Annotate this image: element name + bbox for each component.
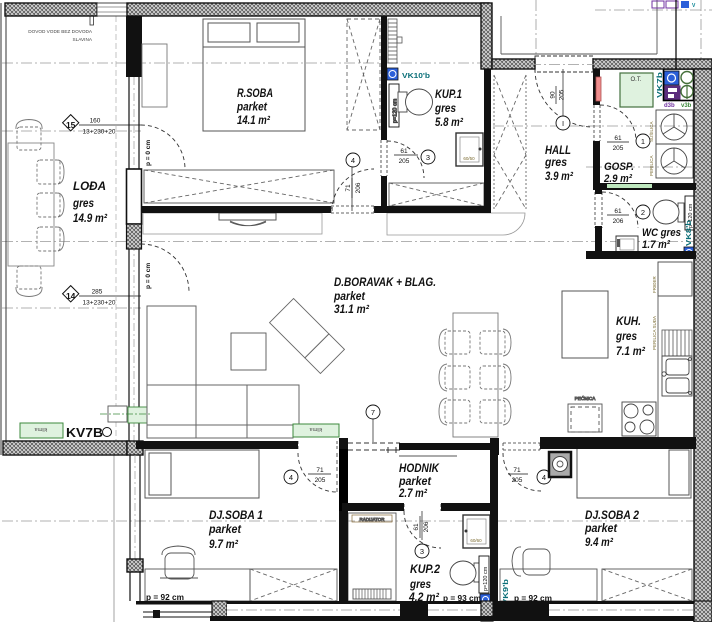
svg-text:gres: gres	[615, 329, 637, 343]
svg-text:2: 2	[641, 208, 645, 217]
svg-text:285: 285	[92, 289, 103, 296]
svg-text:205: 205	[512, 477, 523, 484]
svg-text:parket: parket	[584, 521, 618, 535]
svg-text:DJ.SOBA 1: DJ.SOBA 1	[209, 508, 263, 522]
svg-text:RADIJATOR: RADIJATOR	[359, 517, 385, 522]
svg-text:d3b: d3b	[664, 103, 675, 109]
svg-text:O.T.: O.T.	[630, 77, 641, 83]
svg-text:60/50: 60/50	[463, 156, 475, 161]
svg-text:13+230+20: 13+230+20	[83, 300, 116, 307]
svg-text:p = 92 cm: p = 92 cm	[146, 593, 184, 602]
svg-text:I: I	[562, 119, 564, 128]
svg-text:4: 4	[542, 473, 546, 482]
svg-text:VK8'b: VK8'b	[686, 220, 693, 246]
svg-text:1.7 m²: 1.7 m²	[642, 239, 670, 251]
svg-text:2.7 m²: 2.7 m²	[398, 486, 428, 500]
svg-text:3.9 m²: 3.9 m²	[545, 169, 574, 183]
svg-text:61: 61	[614, 208, 622, 215]
svg-text:206: 206	[355, 182, 362, 193]
svg-text:parket: parket	[236, 100, 268, 114]
svg-text:PERILICA SUĐA: PERILICA SUĐA	[652, 316, 657, 350]
svg-text:61: 61	[614, 135, 622, 142]
svg-text:VK10'b: VK10'b	[402, 73, 430, 80]
svg-text:WC gres: WC gres	[642, 227, 681, 239]
svg-text:9.4 m²: 9.4 m²	[585, 535, 614, 549]
svg-text:206: 206	[613, 218, 624, 225]
svg-text:71: 71	[316, 467, 324, 474]
svg-text:31.1 m²: 31.1 m²	[334, 302, 370, 316]
svg-text:GOSP.: GOSP.	[604, 161, 634, 173]
svg-text:206: 206	[423, 521, 430, 532]
svg-text:p=120 cm: p=120 cm	[483, 566, 489, 591]
svg-text:p = 0 cm: p = 0 cm	[145, 140, 152, 166]
svg-text:205: 205	[559, 89, 566, 100]
svg-text:D.BORAVAK + BLAG.: D.BORAVAK + BLAG.	[334, 275, 436, 289]
svg-text:205: 205	[399, 158, 410, 165]
svg-text:KV7B: KV7B	[66, 425, 103, 440]
svg-text:71: 71	[513, 467, 521, 474]
svg-text:90: 90	[550, 91, 557, 99]
svg-text:LOĐA: LOĐA	[73, 179, 106, 193]
svg-text:FRIĐER: FRIĐER	[652, 276, 657, 294]
svg-text:61: 61	[413, 523, 420, 531]
svg-text:DJ.SOBA 2: DJ.SOBA 2	[585, 508, 639, 522]
svg-text:DOVOD VODE BEZ DOVODA: DOVOD VODE BEZ DOVODA	[28, 29, 93, 34]
svg-text:KUP.2: KUP.2	[410, 562, 440, 576]
svg-text:5.8 m²: 5.8 m²	[435, 115, 464, 129]
svg-text:gres: gres	[72, 196, 94, 210]
svg-text:14: 14	[66, 291, 76, 301]
svg-text:R.SOBA: R.SOBA	[237, 86, 273, 100]
svg-text:KUP.1: KUP.1	[435, 87, 462, 101]
svg-text:7: 7	[371, 408, 375, 417]
svg-text:klima: klima	[34, 426, 48, 432]
svg-text:PERILICA: PERILICA	[649, 155, 654, 176]
svg-text:60/60: 60/60	[470, 538, 482, 543]
svg-text:3: 3	[420, 547, 424, 556]
svg-text:160: 160	[90, 118, 101, 125]
svg-text:SUŠILICA: SUŠILICA	[648, 121, 654, 142]
svg-text:61: 61	[400, 148, 408, 155]
svg-text:14.1 m²: 14.1 m²	[237, 113, 271, 127]
svg-text:HODNIK: HODNIK	[399, 461, 440, 475]
svg-text:p = 0 cm: p = 0 cm	[145, 263, 152, 289]
svg-text:205: 205	[613, 145, 624, 152]
svg-text:14.9 m²: 14.9 m²	[73, 211, 108, 225]
svg-text:parket: parket	[333, 289, 366, 303]
svg-text:205: 205	[315, 477, 326, 484]
svg-text:gres: gres	[409, 577, 431, 591]
svg-text:gres: gres	[544, 155, 567, 169]
svg-text:1: 1	[641, 137, 645, 146]
svg-text:15: 15	[66, 120, 76, 130]
svg-text:SLAVINA: SLAVINA	[73, 37, 93, 42]
svg-text:KUH.: KUH.	[616, 314, 641, 328]
svg-text:9.7 m²: 9.7 m²	[209, 537, 239, 551]
svg-text:7.1 m²: 7.1 m²	[616, 344, 646, 358]
svg-text:gres: gres	[434, 101, 456, 115]
svg-text:4: 4	[351, 156, 355, 165]
svg-text:4: 4	[289, 473, 293, 482]
svg-text:klima: klima	[309, 426, 323, 432]
svg-text:13+230+20: 13+230+20	[83, 129, 116, 136]
svg-text:v3b: v3b	[681, 103, 692, 109]
svg-text:3: 3	[426, 153, 430, 162]
svg-text:parket: parket	[208, 522, 242, 536]
svg-text:71: 71	[345, 184, 352, 192]
